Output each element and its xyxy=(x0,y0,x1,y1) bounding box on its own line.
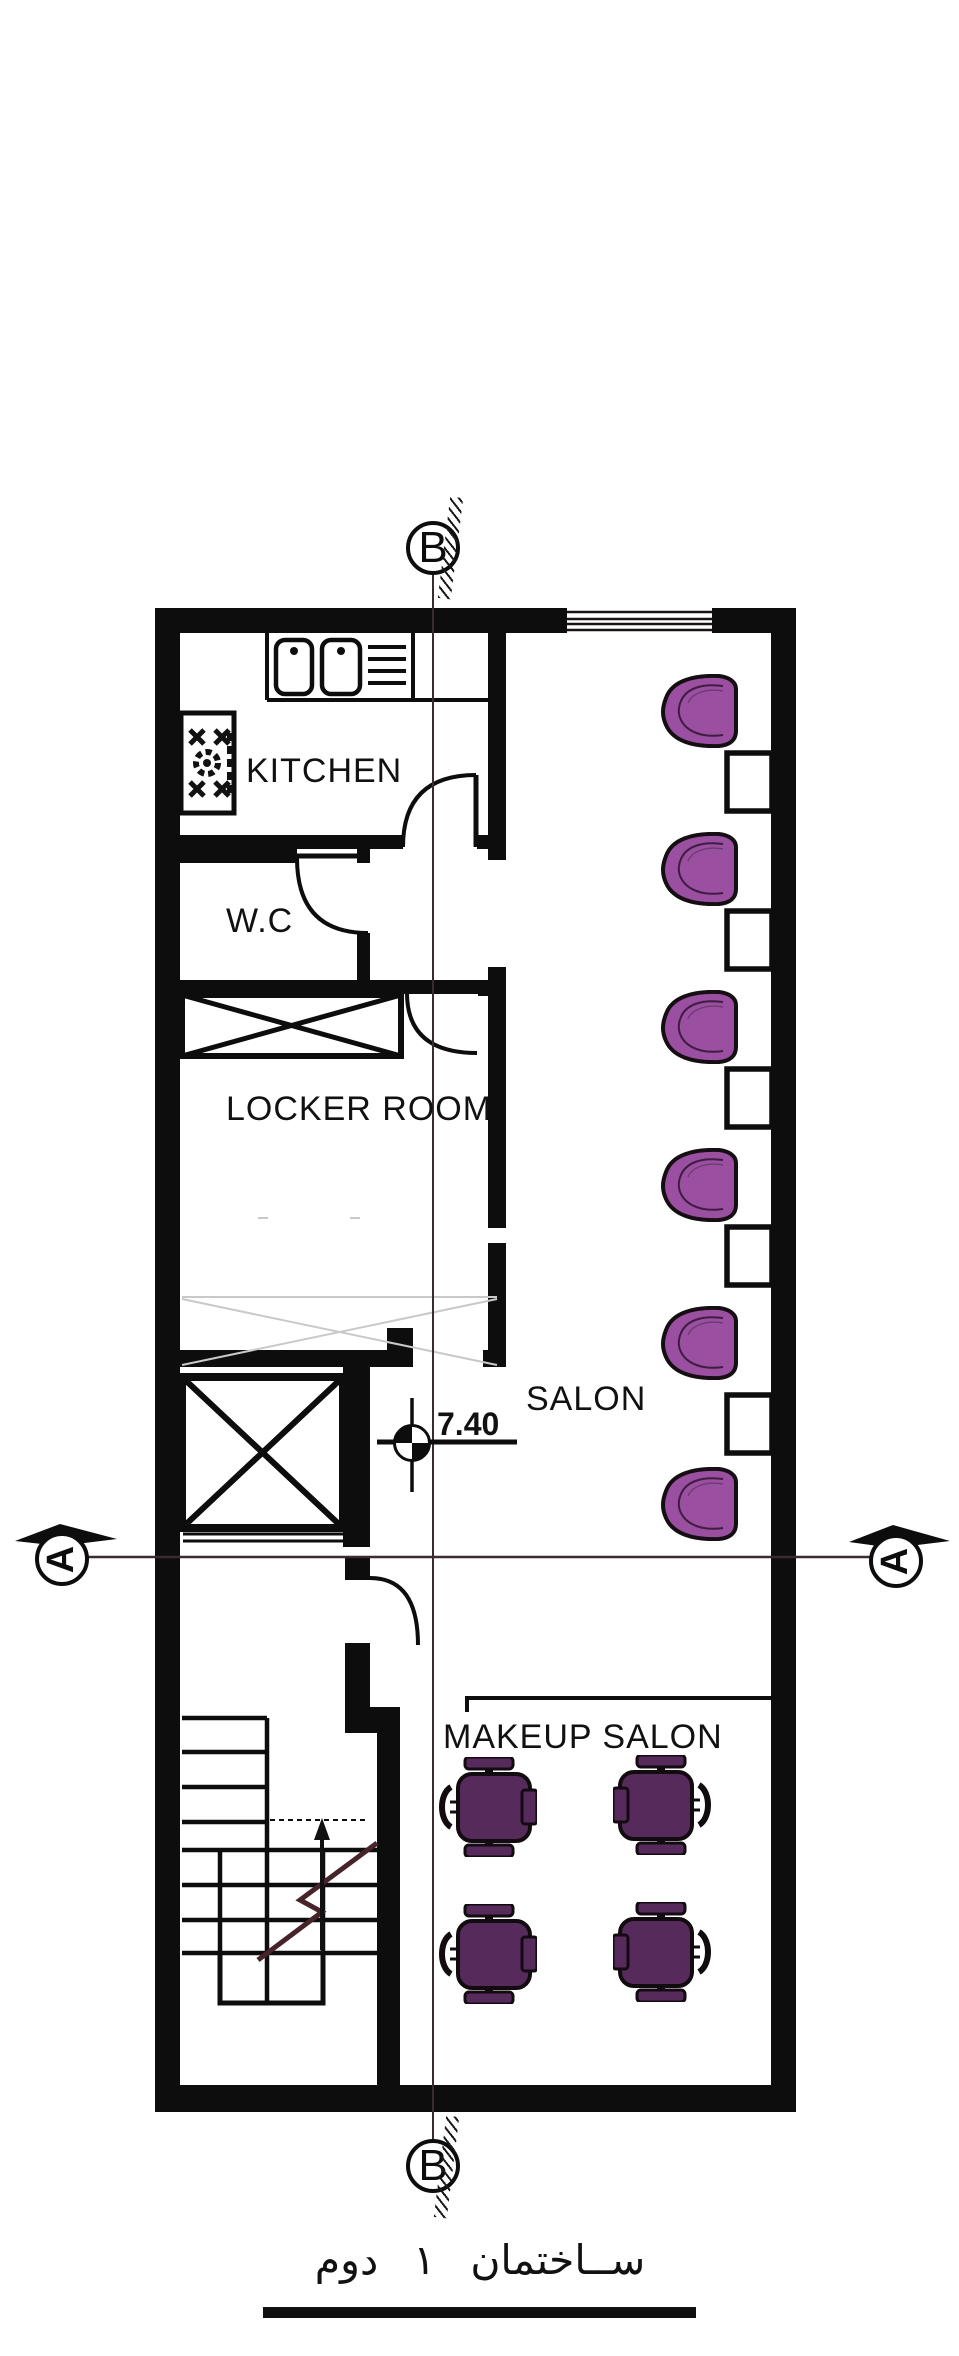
plan-linework xyxy=(0,0,959,2356)
drawing-title-underline xyxy=(263,2307,696,2318)
void-faint-lines xyxy=(182,1218,497,1365)
elevator-shaft xyxy=(182,1377,343,1541)
section-letter-a: A xyxy=(874,1547,917,1574)
locker-cabinet xyxy=(182,995,401,1056)
door-wc xyxy=(297,856,368,933)
staircase xyxy=(182,1718,377,2003)
section-marker-a-left: A xyxy=(35,1532,89,1586)
makeup-chair xyxy=(442,1757,537,1857)
salon-chair xyxy=(663,676,736,746)
salon-chair xyxy=(663,1469,736,1539)
stair-break-line xyxy=(258,1843,377,1960)
section-letter-a: A xyxy=(40,1545,83,1572)
drawing-title: ســاختمان ۱ دوم xyxy=(200,2236,760,2284)
sink-drainboard xyxy=(368,647,406,683)
elevator-doors xyxy=(183,1534,343,1541)
makeup-chair xyxy=(613,1755,708,1855)
level-marker xyxy=(393,1424,431,1462)
kitchen-stove xyxy=(181,713,234,813)
door-locker-room xyxy=(407,993,477,1053)
makeup-partition-line xyxy=(467,1698,772,1712)
room-label-wc: W.C xyxy=(226,902,293,941)
door-kitchen xyxy=(403,775,476,847)
kitchen-sink xyxy=(276,640,406,694)
makeup-chair xyxy=(442,1904,537,2004)
room-label-kitchen: KITCHEN xyxy=(246,752,402,791)
section-marker-a-right: A xyxy=(869,1534,923,1588)
salon-chair xyxy=(663,834,736,904)
room-label-makeup: MAKEUP SALON xyxy=(443,1718,723,1757)
salon-chair xyxy=(663,1150,736,1220)
room-label-locker: LOCKER ROOM xyxy=(226,1090,492,1129)
makeup-chairs xyxy=(442,1755,708,2004)
room-label-salon: SALON xyxy=(526,1380,646,1419)
floor-plan-canvas: KITCHEN W.C LOCKER ROOM SALON MAKEUP SAL… xyxy=(0,0,959,2356)
salon-chair xyxy=(663,992,736,1062)
window-glazing-lines xyxy=(567,612,712,630)
makeup-chair xyxy=(613,1902,708,2002)
door-hall xyxy=(370,1578,418,1645)
salon-chair xyxy=(663,1308,736,1378)
level-value-label: 7.40 xyxy=(437,1406,499,1443)
